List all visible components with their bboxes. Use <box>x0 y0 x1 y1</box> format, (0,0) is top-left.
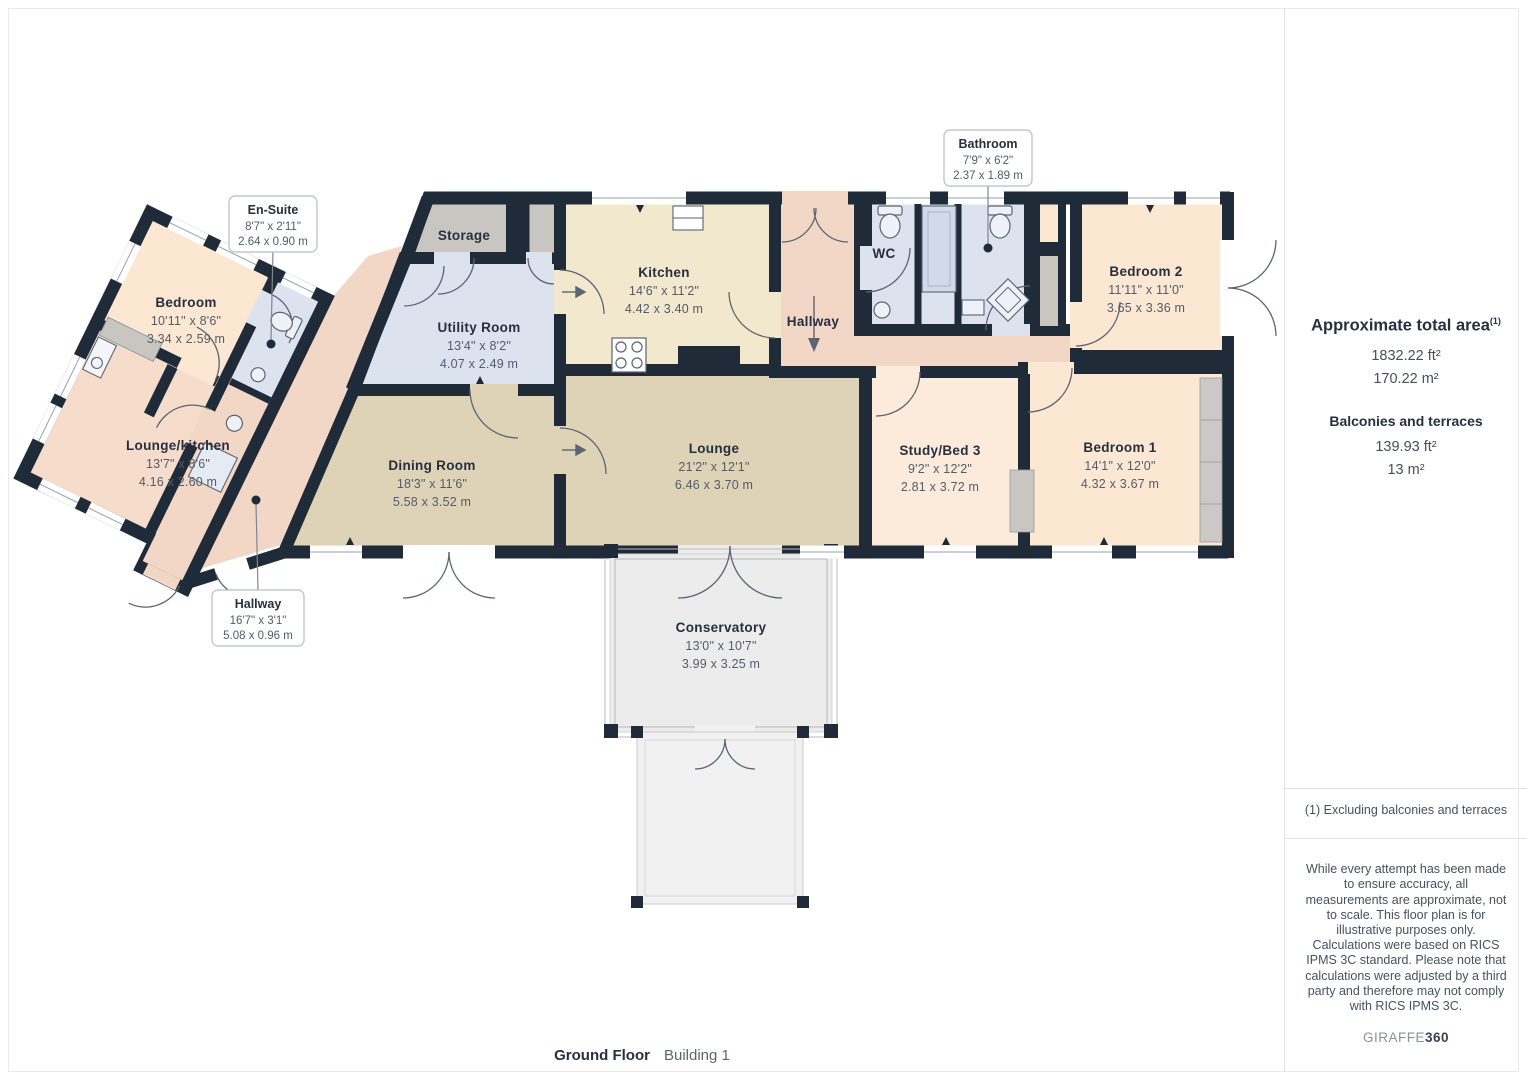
closet-floor <box>1036 252 1062 330</box>
room-name: Dining Room <box>388 458 475 473</box>
svg-text:13'0" x 10'7": 13'0" x 10'7" <box>685 639 756 653</box>
svg-text:5.58 x 3.52 m: 5.58 x 3.52 m <box>393 495 471 509</box>
room-name: Hallway <box>787 314 840 329</box>
sidebar: Approximate total area(1) 1832.22 ft² 17… <box>1284 8 1527 1072</box>
study-closet <box>1010 470 1034 532</box>
bedroom1-wardrobe <box>1200 378 1222 542</box>
svg-text:3.34 x 2.59 m: 3.34 x 2.59 m <box>147 332 225 346</box>
balconies-m: 13 m² <box>1285 462 1527 478</box>
room-name: Lounge/kitchen <box>126 438 230 453</box>
hob-icon <box>612 338 646 372</box>
svg-text:5.08 x 0.96 m: 5.08 x 0.96 m <box>223 630 293 642</box>
disclaimer-accuracy: While every attempt has been made to ens… <box>1301 862 1511 938</box>
svg-text:3.65 x 3.36 m: 3.65 x 3.36 m <box>1107 301 1185 315</box>
svg-text:11'11" x 11'0": 11'11" x 11'0" <box>1108 283 1184 297</box>
room-name: Conservatory <box>676 620 767 635</box>
total-area-m: 170.22 m² <box>1285 371 1527 387</box>
svg-text:8'7" x 2'11": 8'7" x 2'11" <box>245 221 301 233</box>
room-name: Bedroom 2 <box>1109 264 1182 279</box>
shower-icon <box>922 206 956 292</box>
plan-footer: Ground FloorBuilding 1 <box>0 1047 1284 1064</box>
total-area-ft: 1832.22 ft² <box>1285 348 1527 364</box>
footnote-marker: (1) <box>1490 316 1501 326</box>
area-summary: Approximate total area(1) 1832.22 ft² 17… <box>1285 316 1527 485</box>
total-area-title: Approximate total area(1) <box>1285 316 1527 336</box>
svg-text:7'9" x 6'2": 7'9" x 6'2" <box>963 155 1013 167</box>
giraffe360-logo: GIRAFFE360 <box>1285 1030 1527 1045</box>
svg-text:13'7" x 8'6": 13'7" x 8'6" <box>146 457 210 471</box>
svg-text:Hallway: Hallway <box>235 597 282 611</box>
svg-text:4.42 x 3.40 m: 4.42 x 3.40 m <box>625 302 703 316</box>
svg-text:14'1" x 12'0": 14'1" x 12'0" <box>1084 459 1155 473</box>
room-fills <box>160 198 1230 586</box>
disclaimer-rics: Calculations were based on RICS IPMS 3C … <box>1301 938 1511 1014</box>
svg-text:2.37 x 1.89 m: 2.37 x 1.89 m <box>953 170 1023 182</box>
floor-title: Ground Floor <box>554 1047 650 1064</box>
svg-text:9'2" x 12'2": 9'2" x 12'2" <box>908 462 972 476</box>
svg-text:21'2" x 12'1": 21'2" x 12'1" <box>678 460 749 474</box>
svg-text:10'11" x 8'6": 10'11" x 8'6" <box>151 314 221 328</box>
svg-text:En-Suite: En-Suite <box>248 203 299 217</box>
room-name: Bedroom 1 <box>1083 440 1156 455</box>
room-name: Lounge <box>689 441 740 456</box>
svg-text:16'7" x 3'1": 16'7" x 3'1" <box>230 615 287 627</box>
svg-text:2.81 x 3.72 m: 2.81 x 3.72 m <box>901 480 979 494</box>
building-title: Building 1 <box>664 1047 730 1064</box>
balconies-title: Balconies and terraces <box>1285 413 1527 429</box>
svg-text:6.46 x 3.70 m: 6.46 x 3.70 m <box>675 478 753 492</box>
terrace <box>631 726 809 908</box>
nook-floor <box>1036 200 1062 246</box>
bath-sink-icon <box>962 300 984 315</box>
sidebar-divider <box>1285 838 1527 839</box>
room-name: Storage <box>438 228 491 243</box>
footnote: (1) Excluding balconies and terraces <box>1295 803 1517 817</box>
sidebar-divider <box>1285 788 1527 789</box>
floorplan-page: Bedroom 10'11" x 8'6" 3.34 x 2.59 m Loun… <box>0 0 1527 1080</box>
svg-text:2.64 x 0.90 m: 2.64 x 0.90 m <box>238 236 308 248</box>
room-name: WC <box>872 246 895 261</box>
floorplan-canvas: Bedroom 10'11" x 8'6" 3.34 x 2.59 m Loun… <box>0 0 1284 1080</box>
svg-text:14'6" x 11'2": 14'6" x 11'2" <box>629 284 699 298</box>
svg-text:4.07 x 2.49 m: 4.07 x 2.49 m <box>440 357 518 371</box>
svg-text:Bathroom: Bathroom <box>958 137 1017 151</box>
room-name: Bedroom <box>155 295 216 310</box>
bath-toilet-icon <box>988 206 1012 238</box>
wc-sink-icon <box>874 302 890 318</box>
svg-text:18'3" x 11'6": 18'3" x 11'6" <box>397 477 467 491</box>
svg-text:4.16 x 2.60 m: 4.16 x 2.60 m <box>139 475 217 489</box>
svg-text:3.99 x 3.25 m: 3.99 x 3.25 m <box>682 657 760 671</box>
room-name: Study/Bed 3 <box>899 443 981 458</box>
room-name: Utility Room <box>437 320 520 335</box>
svg-text:4.32 x 3.67 m: 4.32 x 3.67 m <box>1081 477 1159 491</box>
wc-toilet-icon <box>878 206 902 238</box>
kitchen-chimney <box>678 346 740 370</box>
svg-text:13'4" x 8'2": 13'4" x 8'2" <box>447 339 511 353</box>
balconies-ft: 139.93 ft² <box>1285 439 1527 455</box>
room-name: Kitchen <box>638 265 690 280</box>
